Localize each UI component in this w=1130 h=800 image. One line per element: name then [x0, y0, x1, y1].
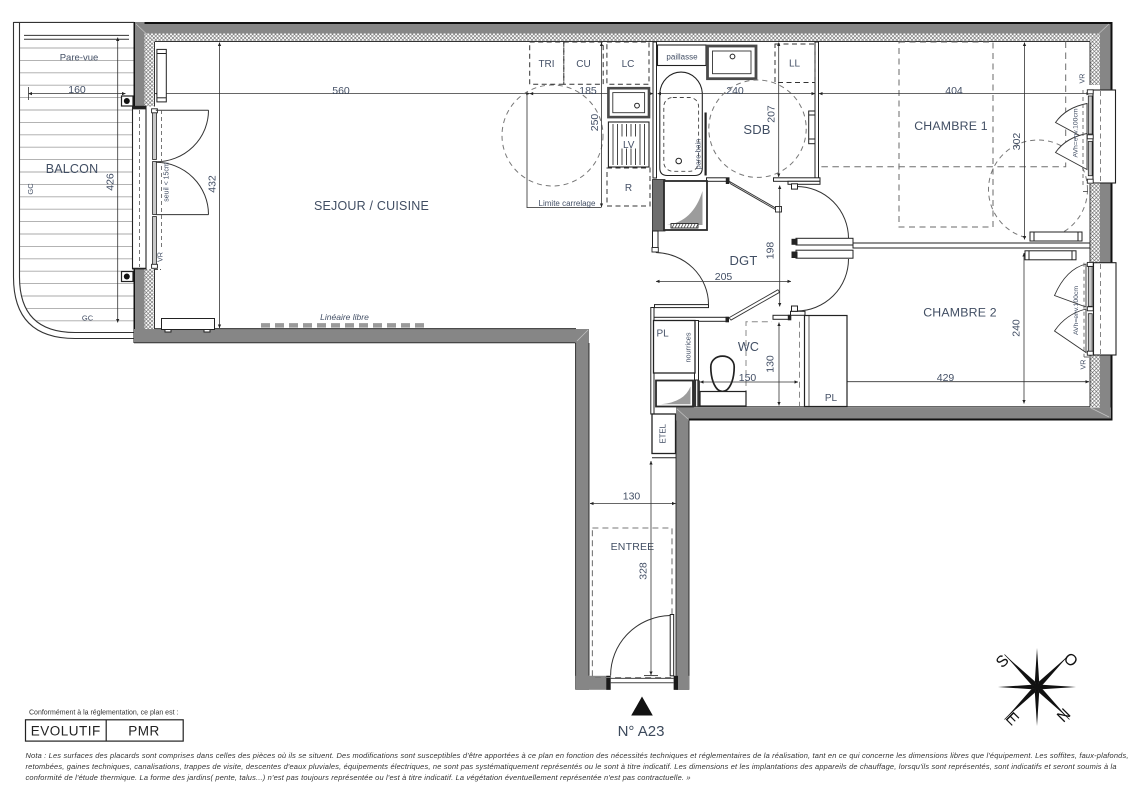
- svg-text:250: 250: [589, 114, 601, 132]
- svg-text:retombées, gaines techniques,: retombées, gaines techniques, canalisati…: [26, 762, 1117, 771]
- svg-text:seuil < 15cm: seuil < 15cm: [164, 162, 171, 202]
- svg-text:150: 150: [739, 372, 757, 384]
- svg-text:CHAMBRE 1: CHAMBRE 1: [914, 119, 988, 133]
- svg-text:198: 198: [765, 242, 777, 260]
- svg-text:560: 560: [332, 85, 350, 97]
- svg-text:LC: LC: [622, 59, 635, 70]
- svg-text:nourrices: nourrices: [684, 332, 693, 362]
- svg-text:pare-bain: pare-bain: [694, 139, 703, 169]
- svg-text:205: 205: [715, 271, 733, 283]
- svg-text:LL: LL: [789, 59, 801, 70]
- svg-text:VR: VR: [1079, 360, 1088, 370]
- svg-text:ETEL: ETEL: [659, 423, 668, 443]
- svg-text:328: 328: [637, 562, 649, 580]
- svg-text:SEJOUR / CUISINE: SEJOUR / CUISINE: [314, 199, 429, 213]
- svg-text:paillasse: paillasse: [666, 53, 698, 62]
- svg-text:O: O: [1060, 650, 1081, 671]
- svg-text:PL: PL: [825, 393, 838, 404]
- svg-text:ENTREE: ENTREE: [611, 541, 655, 553]
- svg-text:DGT: DGT: [729, 253, 757, 268]
- svg-text:VR: VR: [1078, 74, 1087, 84]
- svg-text:302: 302: [1011, 133, 1023, 151]
- svg-text:GC: GC: [82, 314, 94, 323]
- svg-text:CHAMBRE 2: CHAMBRE 2: [923, 306, 997, 320]
- svg-text:185: 185: [579, 85, 597, 97]
- svg-text:LV: LV: [623, 140, 635, 151]
- svg-text:Linéaire libre: Linéaire libre: [320, 312, 369, 322]
- svg-text:SDB: SDB: [743, 122, 770, 137]
- svg-text:AVh=env.100cm: AVh=env.100cm: [1073, 286, 1080, 335]
- svg-text:EVOLUTIF: EVOLUTIF: [31, 724, 101, 739]
- svg-text:207: 207: [766, 105, 778, 123]
- svg-text:130: 130: [623, 491, 641, 503]
- svg-text:240: 240: [726, 85, 744, 97]
- svg-text:404: 404: [945, 85, 963, 97]
- svg-text:S: S: [993, 652, 1013, 672]
- svg-text:130: 130: [765, 355, 777, 373]
- svg-text:GC: GC: [26, 183, 35, 195]
- svg-text:PMR: PMR: [128, 724, 160, 739]
- svg-text:PL: PL: [657, 329, 670, 340]
- svg-text:WC: WC: [738, 340, 759, 354]
- svg-text:AVh=env.100cm: AVh=env.100cm: [1073, 108, 1080, 157]
- svg-text:CU: CU: [576, 59, 590, 70]
- svg-text:N° A23: N° A23: [618, 723, 665, 740]
- svg-text:426: 426: [105, 173, 117, 191]
- svg-text:Conformément à la réglementati: Conformément à la réglementation, ce pla…: [29, 710, 178, 717]
- svg-text:R: R: [625, 183, 632, 194]
- svg-text:TRI: TRI: [538, 59, 554, 70]
- svg-text:Limite carrelage: Limite carrelage: [539, 199, 596, 208]
- svg-text:conformité de l'étude thermiqu: conformité de l'étude thermique. La form…: [26, 773, 691, 782]
- svg-text:BALCON: BALCON: [46, 162, 99, 176]
- svg-text:429: 429: [937, 372, 955, 384]
- svg-text:160: 160: [68, 84, 86, 96]
- svg-text:E: E: [1002, 710, 1022, 730]
- svg-text:VR: VR: [156, 252, 165, 262]
- svg-text:Nota : Les surfaces des placar: Nota : Les surfaces des placards sont co…: [26, 751, 1129, 760]
- svg-text:Pare-vue: Pare-vue: [60, 53, 99, 64]
- svg-text:240: 240: [1011, 319, 1023, 337]
- svg-text:N: N: [1054, 706, 1074, 726]
- svg-text:432: 432: [206, 175, 218, 193]
